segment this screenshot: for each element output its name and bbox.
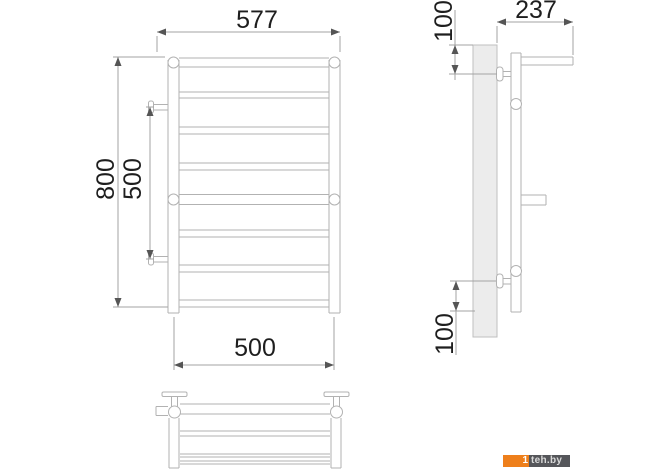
side-wall-brackets (497, 67, 512, 288)
drawing-linework: 577 800 500 500 237 100 10 (0, 0, 670, 471)
front-rungs (179, 92, 329, 307)
bottom-view (156, 392, 349, 468)
side-bar-junctions (511, 99, 522, 277)
towel-rail-technical-drawing: 577 800 500 500 237 100 10 (0, 0, 670, 471)
front-bar-end-circles (168, 57, 340, 205)
dim-100-bottom-label: 100 (431, 313, 459, 355)
bottom-left-stub (156, 407, 168, 416)
side-shelf-arm (521, 57, 573, 65)
bottom-post-circles (169, 406, 343, 418)
dim-800-label: 800 (92, 158, 120, 200)
dim-500-vertical-label: 500 (119, 158, 147, 200)
dimension-500-vertical: 500 (119, 107, 154, 259)
dim-577-label: 577 (236, 6, 278, 34)
dimension-577: 577 (157, 6, 340, 52)
dimension-237: 237 (497, 0, 573, 55)
bottom-bar-rows (180, 404, 330, 464)
watermark-prefix: 1 (522, 455, 528, 466)
side-wall-plate (473, 45, 497, 337)
dim-500-bottom-label: 500 (234, 334, 276, 362)
front-side-stubs (149, 101, 169, 265)
watermark-orange-segment: 1 (503, 455, 529, 467)
dim-100-top-label: 100 (430, 0, 458, 42)
front-middle-bar (179, 195, 329, 205)
dim-237-label: 237 (515, 0, 557, 24)
front-top-bar (179, 58, 329, 67)
watermark-site-label: teh.by (531, 455, 562, 466)
watermark-dark-segment: teh.by (529, 455, 570, 467)
dimension-500-bottom: 500 (174, 317, 334, 370)
side-hook-arm (521, 195, 546, 205)
side-view (473, 45, 573, 337)
front-view (149, 57, 341, 313)
watermark-badge: 1 teh.by (503, 455, 570, 467)
